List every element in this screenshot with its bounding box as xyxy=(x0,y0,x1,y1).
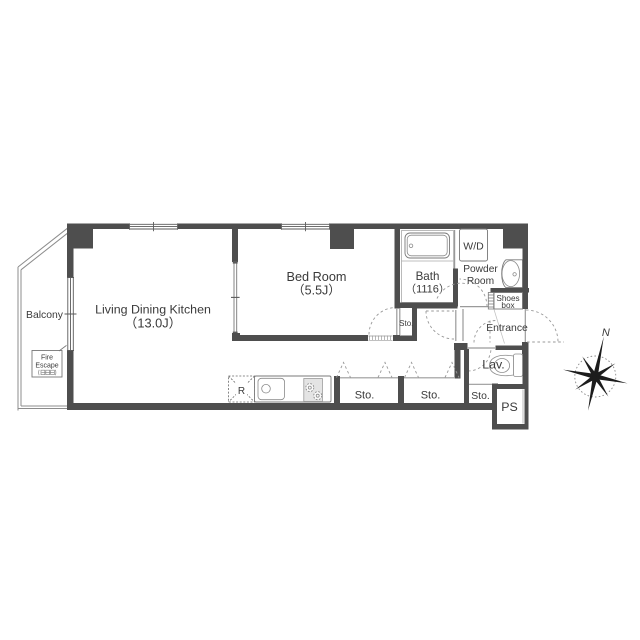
svg-text:Sto.: Sto. xyxy=(471,391,489,402)
svg-text:box: box xyxy=(501,301,514,310)
svg-text:PS: PS xyxy=(501,400,518,414)
svg-text:Lav.: Lav. xyxy=(482,358,505,372)
svg-text:（1116）: （1116） xyxy=(405,283,450,296)
svg-text:Living Dining Kitchen: Living Dining Kitchen xyxy=(95,302,211,316)
svg-text:Powder: Powder xyxy=(463,264,498,275)
svg-text:Sto.: Sto. xyxy=(421,390,441,402)
svg-text:Escape: Escape xyxy=(35,363,58,370)
svg-text:（13.0J）: （13.0J） xyxy=(125,315,182,330)
svg-text:W/D: W/D xyxy=(463,241,484,253)
svg-text:Entrance: Entrance xyxy=(486,323,528,334)
svg-text:Bed Room: Bed Room xyxy=(287,270,347,284)
svg-text:（5.5J）: （5.5J） xyxy=(292,284,341,298)
svg-text:R: R xyxy=(238,386,245,397)
svg-text:Bath: Bath xyxy=(416,270,440,283)
svg-text:Fire: Fire xyxy=(41,355,53,362)
svg-text:N: N xyxy=(602,327,610,339)
svg-text:Sto.: Sto. xyxy=(355,390,375,402)
svg-text:Sto.: Sto. xyxy=(399,319,413,328)
svg-text:Room: Room xyxy=(467,276,494,287)
svg-text:Balcony: Balcony xyxy=(26,310,64,321)
